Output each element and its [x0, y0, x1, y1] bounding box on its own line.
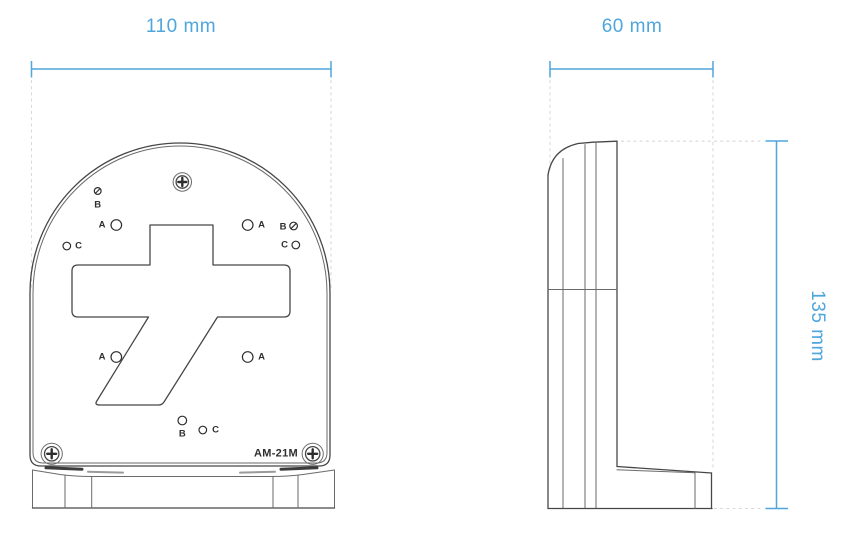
hole-c-left — [63, 242, 71, 250]
base-top-edge — [33, 470, 335, 477]
hole-label-a-top-left: A — [99, 220, 106, 230]
hole-label-c-left: C — [75, 241, 82, 251]
hole-label-c-bottom: C — [212, 425, 219, 435]
front-base — [33, 468, 335, 508]
extension-lines — [32, 80, 765, 509]
hole-a-top-left — [111, 220, 122, 231]
base-gasket-pads — [46, 468, 317, 473]
logo-cutout — [72, 225, 290, 405]
dimension-label-side-height: 135 mm — [806, 290, 828, 362]
hole-a-mid-right — [242, 352, 253, 363]
side-top-curve — [548, 141, 617, 175]
hole-c-bottom — [199, 426, 207, 434]
hole-label-a-mid-right: A — [258, 352, 265, 362]
plate-inner-outline — [33, 146, 327, 463]
side-view — [548, 141, 712, 508]
drawing-linework — [0, 0, 845, 540]
phillips-screw-bottom-left — [41, 443, 62, 464]
dimension-lines — [32, 61, 789, 509]
hole-b-bottom — [178, 416, 187, 425]
hole-label-b-top-left: B — [94, 200, 101, 210]
hole-label-b-bottom: B — [179, 429, 186, 439]
hole-a-top-right — [242, 220, 253, 231]
hole-c-right — [292, 241, 300, 249]
dimension-label-side-depth: 60 mm — [602, 16, 663, 38]
hole-label-a-mid-left: A — [99, 352, 106, 362]
dimension-front-width — [32, 61, 332, 78]
hole-b-right-slashed — [290, 222, 298, 230]
hole-label-a-top-right: A — [258, 220, 265, 230]
dimension-side-height — [766, 141, 789, 509]
dimension-label-front-width: 110 mm — [146, 16, 216, 38]
model-label: AM-21M — [254, 449, 298, 460]
hole-b-top-left-slashed — [94, 188, 101, 195]
side-foot — [617, 467, 712, 509]
hole-a-mid-left — [111, 352, 122, 363]
phillips-screw-bottom-right — [302, 443, 323, 464]
dimension-side-depth — [550, 61, 713, 78]
technical-drawing: 110 mm 60 mm 135 mm B A C A B C A A B C … — [0, 0, 845, 540]
phillips-screw-top — [173, 173, 191, 191]
hole-label-b-right: B — [280, 222, 287, 232]
hole-label-c-right: C — [281, 240, 288, 250]
